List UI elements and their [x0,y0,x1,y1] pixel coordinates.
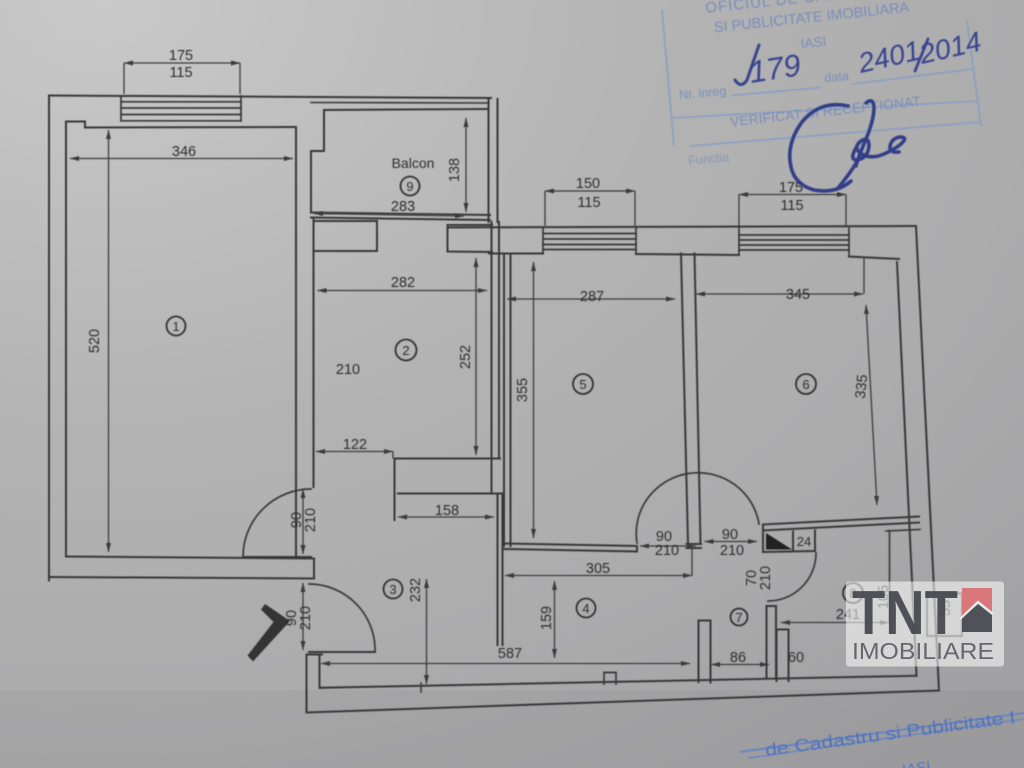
svg-text:283: 283 [391,199,415,215]
svg-text:158: 158 [435,503,459,519]
svg-text:587: 587 [498,646,522,662]
svg-text:Balcon: Balcon [392,155,435,171]
svg-text:122: 122 [343,437,367,453]
svg-text:335: 335 [853,374,871,400]
svg-text:138: 138 [447,158,463,182]
svg-text:355: 355 [515,378,531,402]
svg-text:159: 159 [539,606,555,630]
svg-text:6: 6 [802,377,809,392]
svg-text:24: 24 [797,534,811,549]
svg-text:5: 5 [579,377,586,392]
svg-text:287: 287 [580,289,604,305]
svg-text:IASI: IASI [800,34,827,52]
svg-text:150: 150 [576,176,600,192]
svg-text:210: 210 [720,543,744,559]
svg-text:1: 1 [172,319,179,334]
svg-text:305: 305 [586,561,610,577]
svg-text:232: 232 [408,578,424,602]
svg-text:210: 210 [303,508,319,532]
svg-text:115: 115 [169,65,192,81]
svg-text:115: 115 [780,198,803,214]
svg-text:345: 345 [786,287,810,303]
svg-text:IMOBILIARE: IMOBILIARE [852,638,994,664]
svg-text:252: 252 [458,345,474,369]
svg-text:520: 520 [87,329,103,353]
svg-text:data: data [824,69,850,85]
svg-text:210: 210 [336,362,360,378]
svg-text:210: 210 [758,566,774,590]
svg-text:4: 4 [582,601,589,616]
svg-text:60: 60 [788,650,804,666]
svg-text:210: 210 [655,543,679,559]
svg-text:86: 86 [730,650,746,666]
svg-text:346: 346 [172,144,196,160]
svg-text:210: 210 [298,606,314,630]
svg-text:282: 282 [391,275,415,291]
svg-text:175: 175 [169,48,193,64]
svg-text:115: 115 [577,195,600,211]
svg-text:2: 2 [402,343,409,358]
svg-text:3: 3 [389,582,396,597]
svg-text:90: 90 [722,527,738,543]
svg-text:7: 7 [735,610,742,625]
svg-text:9: 9 [406,179,413,194]
